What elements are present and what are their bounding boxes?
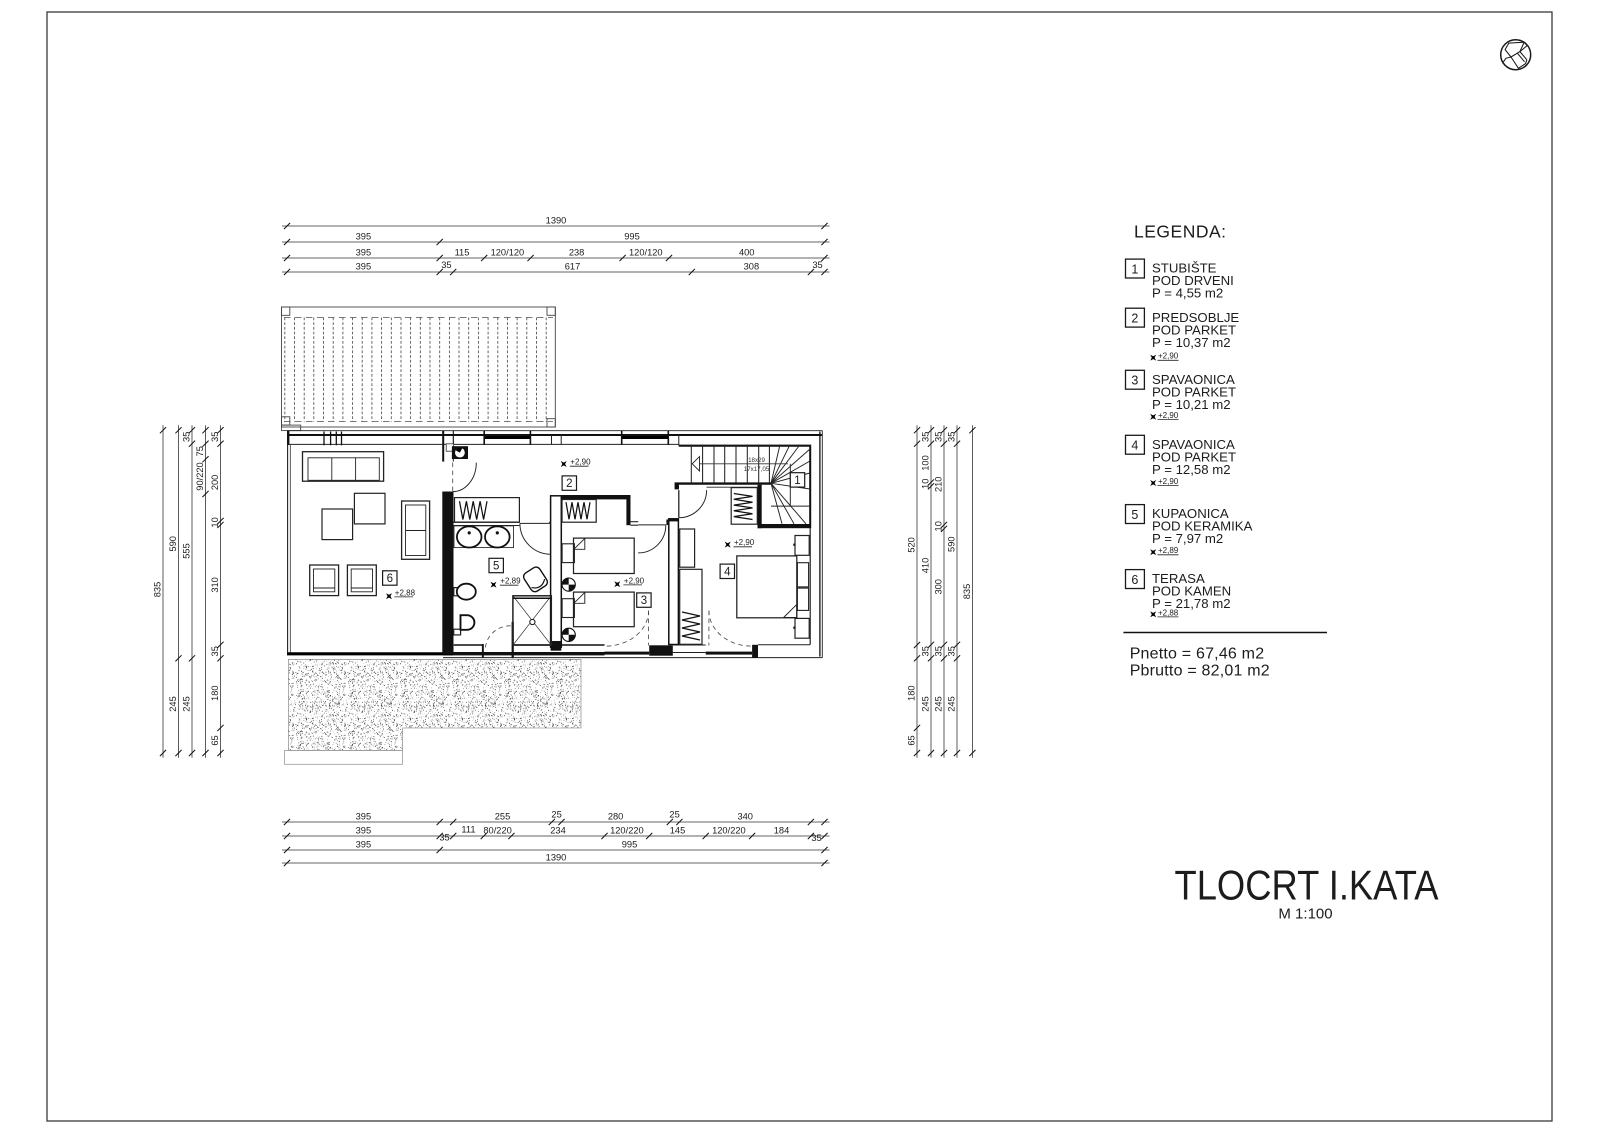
svg-text:280: 280	[608, 811, 624, 821]
svg-text:+2,90: +2,90	[1158, 477, 1179, 486]
svg-text:35: 35	[439, 833, 449, 843]
svg-text:P = 10,21 m2: P = 10,21 m2	[1152, 397, 1231, 412]
svg-text:6: 6	[1131, 573, 1138, 587]
svg-text:6: 6	[387, 573, 393, 585]
svg-text:1390: 1390	[546, 852, 567, 862]
svg-text:1: 1	[794, 475, 800, 487]
svg-text:65: 65	[210, 735, 220, 745]
svg-text:Pnetto = 67,46 m2: Pnetto = 67,46 m2	[1130, 646, 1265, 663]
svg-text:180: 180	[906, 685, 916, 701]
svg-text:210: 210	[933, 477, 943, 493]
svg-text:35: 35	[210, 432, 220, 442]
svg-text:10: 10	[933, 521, 943, 531]
svg-text:238: 238	[569, 247, 585, 257]
svg-text:308: 308	[744, 261, 760, 271]
svg-text:35: 35	[946, 432, 956, 442]
svg-text:120/120: 120/120	[629, 247, 663, 257]
svg-text:120/220: 120/220	[610, 825, 644, 835]
svg-text:18x29: 18x29	[748, 457, 765, 464]
svg-text:+2,88: +2,88	[1158, 608, 1179, 617]
svg-text:25: 25	[551, 810, 561, 820]
svg-text:+2,90: +2,90	[734, 538, 755, 547]
svg-text:180: 180	[210, 685, 220, 701]
svg-text:35: 35	[441, 260, 451, 270]
svg-text:245: 245	[920, 696, 930, 712]
svg-text:245: 245	[168, 696, 178, 712]
svg-text:1390: 1390	[546, 215, 567, 225]
svg-text:75: 75	[195, 446, 205, 456]
svg-text:2: 2	[1131, 311, 1138, 325]
svg-text:3: 3	[641, 595, 647, 607]
svg-text:+2,88: +2,88	[395, 588, 416, 597]
svg-text:245: 245	[181, 696, 191, 712]
svg-text:400: 400	[739, 247, 755, 257]
svg-text:115: 115	[455, 247, 470, 257]
svg-text:35: 35	[946, 646, 956, 656]
svg-text:90/220: 90/220	[195, 462, 205, 490]
svg-text:TLOCRT I.KATA: TLOCRT I.KATA	[1175, 862, 1439, 909]
svg-text:35: 35	[812, 260, 822, 270]
svg-text:35: 35	[811, 833, 821, 843]
svg-text:5: 5	[1131, 508, 1138, 522]
svg-text:300: 300	[933, 579, 943, 595]
svg-text:5: 5	[493, 561, 499, 573]
svg-text:395: 395	[356, 231, 372, 241]
svg-text:995: 995	[622, 839, 638, 849]
svg-text:35: 35	[920, 646, 930, 656]
svg-text:P = 12,58 m2: P = 12,58 m2	[1152, 462, 1231, 477]
svg-text:310: 310	[210, 577, 220, 593]
svg-text:395: 395	[356, 811, 372, 821]
svg-text:2: 2	[566, 478, 572, 490]
svg-text:590: 590	[946, 536, 956, 552]
svg-text:184: 184	[774, 825, 790, 835]
svg-text:+2,89: +2,89	[500, 577, 521, 586]
svg-text:Pbrutto = 82,01 m2: Pbrutto = 82,01 m2	[1130, 662, 1270, 679]
svg-text:340: 340	[737, 811, 753, 821]
svg-text:+2,90: +2,90	[570, 458, 591, 467]
svg-text:P = 10,37 m2: P = 10,37 m2	[1152, 335, 1231, 350]
svg-text:M 1:100: M 1:100	[1278, 906, 1332, 923]
svg-text:145: 145	[670, 825, 686, 835]
svg-text:395: 395	[356, 247, 372, 257]
svg-text:65: 65	[906, 735, 916, 745]
svg-text:25: 25	[669, 810, 679, 820]
svg-text:255: 255	[495, 811, 511, 821]
svg-text:17x17,05: 17x17,05	[744, 466, 770, 473]
svg-text:245: 245	[946, 696, 956, 712]
svg-text:+2,90: +2,90	[1158, 411, 1179, 420]
svg-text:35: 35	[933, 432, 943, 442]
svg-text:395: 395	[356, 261, 372, 271]
svg-text:10: 10	[210, 517, 220, 527]
svg-text:P = 7,97 m2: P = 7,97 m2	[1152, 531, 1223, 546]
svg-text:35: 35	[933, 646, 943, 656]
svg-text:234: 234	[550, 825, 566, 835]
svg-text:617: 617	[565, 261, 581, 271]
svg-text:1: 1	[1131, 262, 1138, 276]
svg-text:100: 100	[920, 455, 930, 471]
svg-text:410: 410	[920, 558, 930, 574]
svg-text:80/220: 80/220	[483, 825, 511, 835]
svg-text:35: 35	[181, 432, 191, 442]
svg-text:590: 590	[168, 536, 178, 552]
svg-text:P = 4,55 m2: P = 4,55 m2	[1152, 286, 1223, 301]
svg-text:395: 395	[356, 825, 372, 835]
svg-text:10: 10	[920, 479, 930, 489]
svg-text:995: 995	[624, 231, 640, 241]
svg-text:120/120: 120/120	[491, 247, 525, 257]
svg-text:555: 555	[181, 543, 191, 559]
svg-text:LEGENDA:: LEGENDA:	[1134, 222, 1227, 242]
svg-text:35: 35	[920, 432, 930, 442]
svg-text:3: 3	[1131, 374, 1138, 388]
svg-text:+2,89: +2,89	[1158, 546, 1179, 555]
svg-text:35: 35	[210, 646, 220, 656]
svg-text:4: 4	[724, 566, 731, 578]
svg-text:395: 395	[356, 839, 372, 849]
svg-text:835: 835	[962, 584, 972, 600]
svg-text:111: 111	[461, 825, 475, 835]
svg-text:245: 245	[933, 696, 943, 712]
svg-text:4: 4	[1131, 439, 1138, 453]
svg-text:520: 520	[906, 537, 916, 553]
svg-text:835: 835	[152, 582, 162, 598]
svg-text:200: 200	[210, 475, 220, 491]
svg-text:120/220: 120/220	[712, 825, 746, 835]
svg-text:+2,90: +2,90	[1158, 352, 1179, 361]
svg-text:+2,90: +2,90	[624, 576, 645, 585]
